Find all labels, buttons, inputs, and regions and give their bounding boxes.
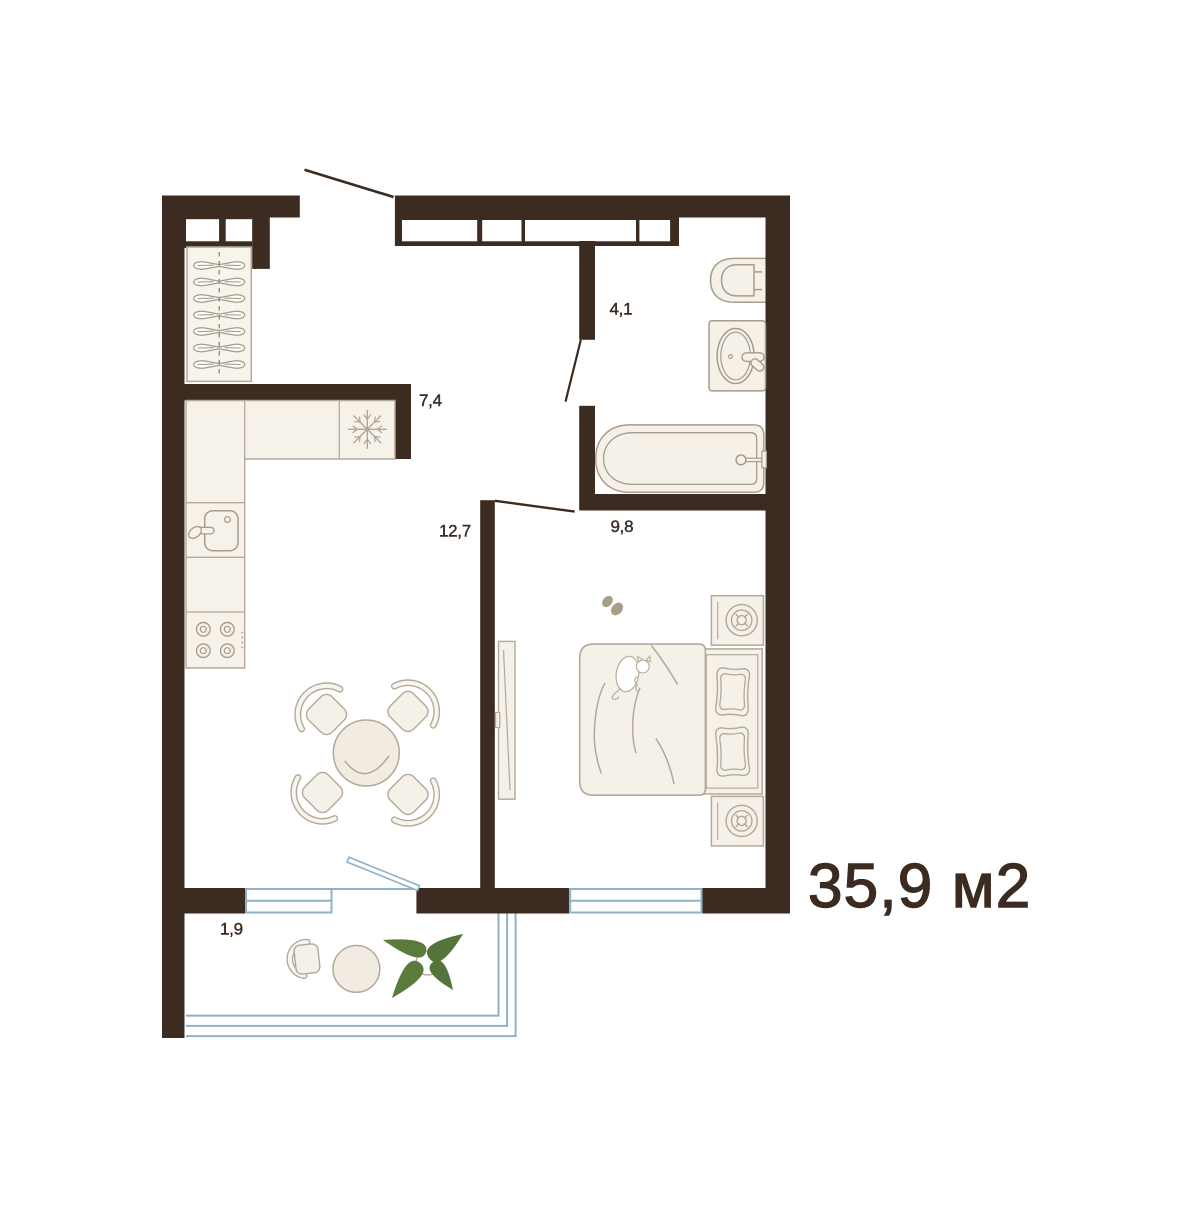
svg-text:4,1: 4,1 [610, 300, 633, 319]
svg-text:7,4: 7,4 [419, 391, 442, 410]
svg-text:35,9 м2: 35,9 м2 [808, 852, 1031, 921]
svg-text:1,9: 1,9 [220, 920, 243, 939]
svg-text:9,8: 9,8 [611, 517, 634, 536]
svg-text:12,7: 12,7 [439, 522, 471, 541]
